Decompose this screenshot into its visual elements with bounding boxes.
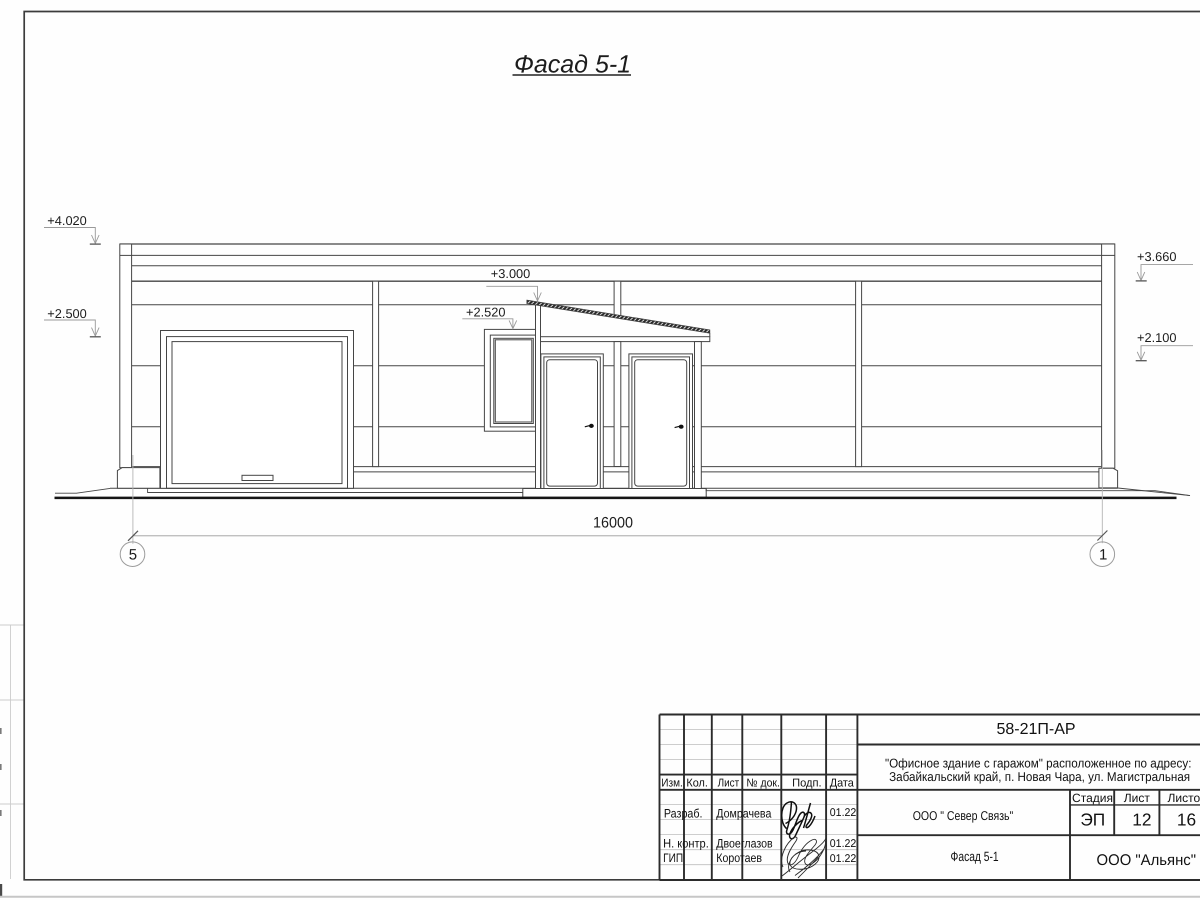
svg-text:Лист: Лист xyxy=(1124,791,1151,805)
svg-text:+2.520: +2.520 xyxy=(466,304,506,319)
svg-text:+3.000: +3.000 xyxy=(491,266,531,281)
svg-text:"Офисное здание с гаражом" рас: "Офисное здание с гаражом" расположенное… xyxy=(885,755,1192,770)
svg-text:Подп.: Подп. xyxy=(792,777,822,789)
svg-text:01.22: 01.22 xyxy=(830,838,857,850)
svg-text:Забайкальский край, п. Новая Ч: Забайкальский край, п. Новая Чара, ул. М… xyxy=(889,769,1190,784)
svg-text:Кол.: Кол. xyxy=(686,777,708,789)
svg-text:01.22: 01.22 xyxy=(830,807,857,819)
svg-text:Листов: Листов xyxy=(1167,791,1200,805)
svg-text:Коротаев: Коротаев xyxy=(716,851,762,865)
svg-text:5: 5 xyxy=(129,546,137,563)
svg-text:№ док.: № док. xyxy=(746,777,780,789)
svg-text:ГИП: ГИП xyxy=(663,851,683,865)
svg-text:Разраб.: Разраб. xyxy=(664,807,703,821)
svg-text:+2.500: +2.500 xyxy=(47,306,87,321)
svg-text:ООО "Альянс": ООО "Альянс" xyxy=(1097,852,1197,869)
svg-text:Лист: Лист xyxy=(718,777,740,789)
svg-text:ООО " Север Связь": ООО " Север Связь" xyxy=(913,808,1014,823)
svg-text:+3.660: +3.660 xyxy=(1137,249,1177,264)
svg-text:Фасад 5-1: Фасад 5-1 xyxy=(514,50,631,78)
svg-text:+2.100: +2.100 xyxy=(1137,330,1177,345)
svg-text:Стадия: Стадия xyxy=(1072,791,1113,805)
svg-text:Дата: Дата xyxy=(830,777,855,789)
svg-text:16000: 16000 xyxy=(593,514,633,531)
svg-text:Фасад 5-1: Фасад 5-1 xyxy=(951,849,999,864)
svg-text:12: 12 xyxy=(1132,810,1151,830)
svg-text:1: 1 xyxy=(1099,547,1107,564)
svg-text:+4.020: +4.020 xyxy=(47,213,87,228)
svg-text:16: 16 xyxy=(1177,810,1196,830)
svg-text:58-21П-АР: 58-21П-АР xyxy=(996,721,1075,738)
svg-text:Домрачева: Домрачева xyxy=(716,807,771,821)
svg-text:Изм.: Изм. xyxy=(661,777,683,789)
svg-text:ЭП: ЭП xyxy=(1080,810,1105,830)
svg-text:Двоеглазов: Двоеглазов xyxy=(716,836,772,850)
svg-text:Н. контр.: Н. контр. xyxy=(663,836,709,850)
svg-text:01.22: 01.22 xyxy=(830,853,857,865)
